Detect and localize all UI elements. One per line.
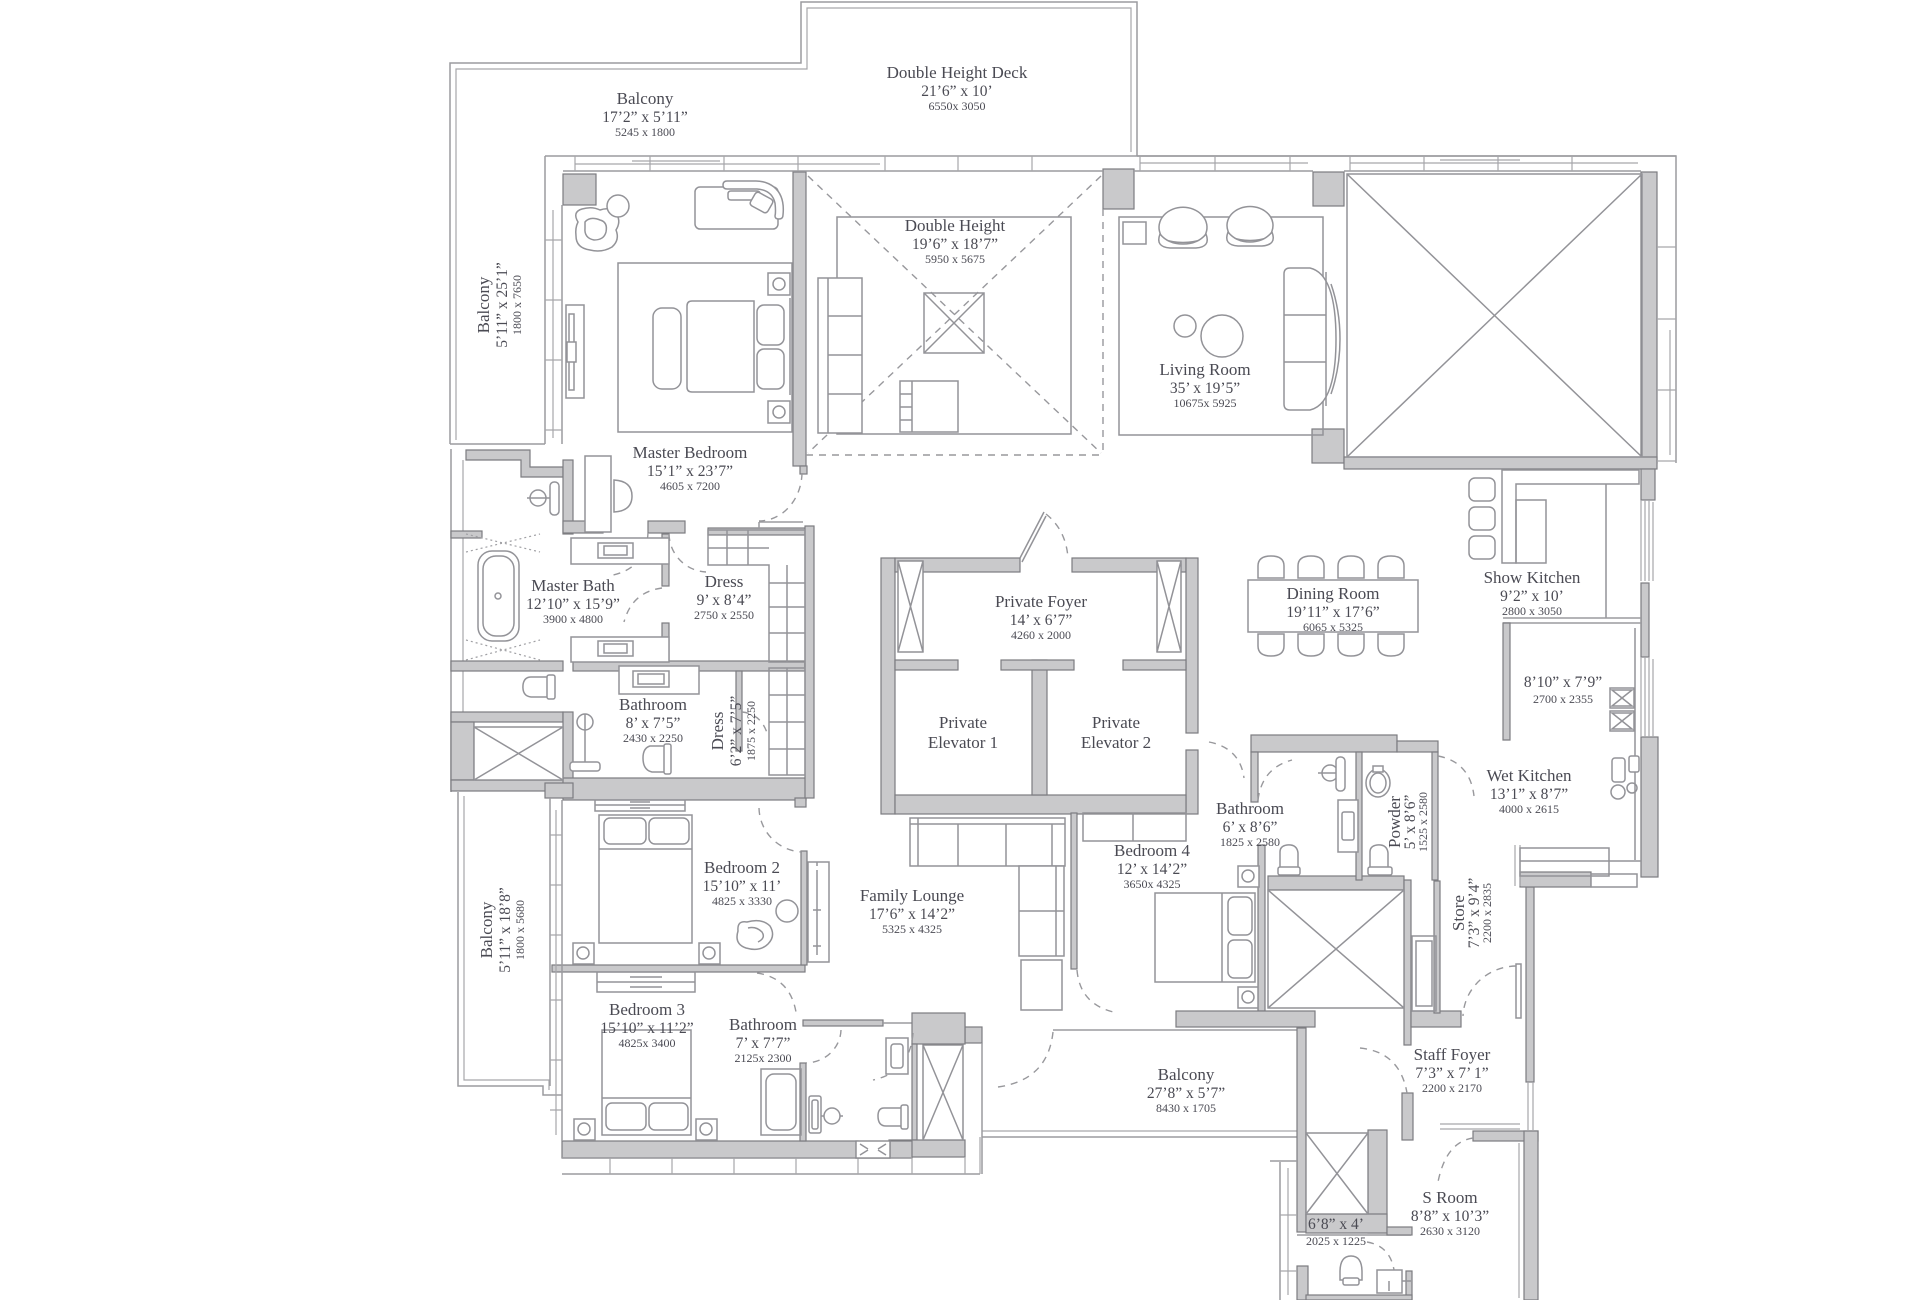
svg-text:Elevator 2: Elevator 2 [1081, 733, 1151, 752]
svg-text:2750 x 2550: 2750 x 2550 [694, 608, 754, 622]
svg-text:Master Bedroom: Master Bedroom [633, 443, 748, 462]
svg-text:Bedroom 3: Bedroom 3 [609, 1000, 685, 1019]
svg-text:Dining Room: Dining Room [1286, 584, 1379, 603]
svg-text:9’2” x 10’: 9’2” x 10’ [1500, 588, 1564, 605]
svg-text:Wet Kitchen: Wet Kitchen [1486, 766, 1572, 785]
svg-text:Show Kitchen: Show Kitchen [1484, 568, 1581, 587]
svg-text:4605 x 7200: 4605 x 7200 [660, 479, 720, 493]
svg-text:6065 x 5325: 6065 x 5325 [1303, 620, 1363, 634]
svg-text:14’ x 6’7”: 14’ x 6’7” [1010, 612, 1073, 629]
svg-text:6’ x 8’6”: 6’ x 8’6” [1223, 819, 1278, 836]
svg-text:35’ x 19’5”: 35’ x 19’5” [1170, 380, 1240, 397]
svg-text:12’ x 14’2”: 12’ x 14’2” [1117, 861, 1187, 878]
svg-text:1800 x 7650: 1800 x 7650 [510, 275, 524, 335]
svg-text:19’6” x 18’7”: 19’6” x 18’7” [912, 236, 998, 253]
svg-text:2800 x 3050: 2800 x 3050 [1502, 604, 1562, 618]
svg-text:Living Room: Living Room [1159, 360, 1250, 379]
svg-text:Double Height: Double Height [905, 216, 1006, 235]
svg-text:Family Lounge: Family Lounge [860, 886, 964, 905]
svg-text:6’8” x 4’: 6’8” x 4’ [1308, 1216, 1364, 1233]
svg-text:Bathroom: Bathroom [619, 695, 687, 714]
svg-text:7’3” x 7’ 1”: 7’3” x 7’ 1” [1415, 1065, 1488, 1082]
svg-text:2200 x 2170: 2200 x 2170 [1422, 1081, 1482, 1095]
svg-text:21’6” x 10’: 21’6” x 10’ [921, 83, 992, 100]
svg-text:Balcony: Balcony [1158, 1065, 1215, 1084]
svg-text:2630 x 3120: 2630 x 3120 [1420, 1224, 1480, 1238]
svg-text:13’1” x 8’7”: 13’1” x 8’7” [1490, 786, 1568, 803]
svg-text:1825 x 2580: 1825 x 2580 [1220, 835, 1280, 849]
svg-text:Staff Foyer: Staff Foyer [1414, 1045, 1491, 1064]
svg-text:15’10” x 11’2”: 15’10” x 11’2” [600, 1020, 693, 1037]
svg-text:5950 x 5675: 5950 x 5675 [925, 252, 985, 266]
svg-text:9’ x 8’4”: 9’ x 8’4” [697, 592, 752, 609]
svg-text:Bathroom: Bathroom [1216, 799, 1284, 818]
svg-text:2025 x 1225: 2025 x 1225 [1306, 1234, 1366, 1248]
svg-text:4825x 3400: 4825x 3400 [619, 1036, 676, 1050]
svg-text:8’8” x 10’3”: 8’8” x 10’3” [1411, 1208, 1489, 1225]
svg-text:4260 x 2000: 4260 x 2000 [1011, 628, 1071, 642]
svg-text:6’2” x 7’5”: 6’2” x 7’5” [728, 696, 745, 767]
svg-text:1525 x 2580: 1525 x 2580 [1416, 792, 1430, 852]
svg-text:5245 x 1800: 5245 x 1800 [615, 125, 675, 139]
svg-text:5325 x 4325: 5325 x 4325 [882, 922, 942, 936]
svg-text:Balcony: Balcony [617, 89, 674, 108]
svg-text:17’2” x 5’11”: 17’2” x 5’11” [602, 109, 688, 126]
svg-text:15’1” x 23’7”: 15’1” x 23’7” [647, 463, 733, 480]
svg-text:2700 x 2355: 2700 x 2355 [1533, 692, 1593, 706]
svg-text:8’ x 7’5”: 8’ x 7’5” [626, 715, 681, 732]
svg-text:Master Bath: Master Bath [531, 576, 615, 595]
svg-text:5’11” x 25’1”: 5’11” x 25’1” [494, 262, 511, 348]
svg-text:Balcony: Balcony [474, 276, 493, 333]
svg-text:27’8” x 5’7”: 27’8” x 5’7” [1147, 1085, 1225, 1102]
svg-text:1875 x 2250: 1875 x 2250 [744, 701, 758, 761]
svg-text:19’11” x 17’6”: 19’11” x 17’6” [1286, 604, 1379, 621]
svg-text:7’ x 7’7”: 7’ x 7’7” [736, 1035, 791, 1052]
svg-text:Dress: Dress [708, 712, 727, 751]
svg-text:3650x 4325: 3650x 4325 [1124, 877, 1181, 891]
svg-text:Private Foyer: Private Foyer [995, 592, 1087, 611]
svg-text:Private: Private [1092, 713, 1140, 732]
svg-text:4000 x 2615: 4000 x 2615 [1499, 802, 1559, 816]
svg-text:Bathroom: Bathroom [729, 1015, 797, 1034]
svg-text:6550x 3050: 6550x 3050 [929, 99, 986, 113]
svg-text:Private: Private [939, 713, 987, 732]
svg-text:2200 x 2835: 2200 x 2835 [1480, 883, 1494, 943]
svg-text:S Room: S Room [1422, 1188, 1477, 1207]
svg-text:12’10” x 15’9”: 12’10” x 15’9” [526, 596, 620, 613]
svg-text:2430 x 2250: 2430 x 2250 [623, 731, 683, 745]
svg-text:15’10” x 11’: 15’10” x 11’ [703, 878, 782, 895]
svg-text:17’6” x 14’2”: 17’6” x 14’2” [869, 906, 955, 923]
svg-text:4825 x 3330: 4825 x 3330 [712, 894, 772, 908]
svg-text:5’11” x 18’8”: 5’11” x 18’8” [497, 887, 514, 973]
svg-text:Bedroom 2: Bedroom 2 [704, 858, 780, 877]
svg-text:Bedroom 4: Bedroom 4 [1114, 841, 1191, 860]
svg-text:2125x 2300: 2125x 2300 [735, 1051, 792, 1065]
svg-text:1800 x 5680: 1800 x 5680 [513, 900, 527, 960]
svg-text:Double Height Deck: Double Height Deck [887, 63, 1028, 82]
svg-text:10675x 5925: 10675x 5925 [1174, 396, 1237, 410]
svg-text:3900 x 4800: 3900 x 4800 [543, 612, 603, 626]
svg-text:Balcony: Balcony [477, 901, 496, 958]
svg-text:8’10” x 7’9”: 8’10” x 7’9” [1524, 674, 1602, 691]
svg-text:Elevator 1: Elevator 1 [928, 733, 998, 752]
svg-text:8430 x 1705: 8430 x 1705 [1156, 1101, 1216, 1115]
svg-text:Dress: Dress [705, 572, 744, 591]
